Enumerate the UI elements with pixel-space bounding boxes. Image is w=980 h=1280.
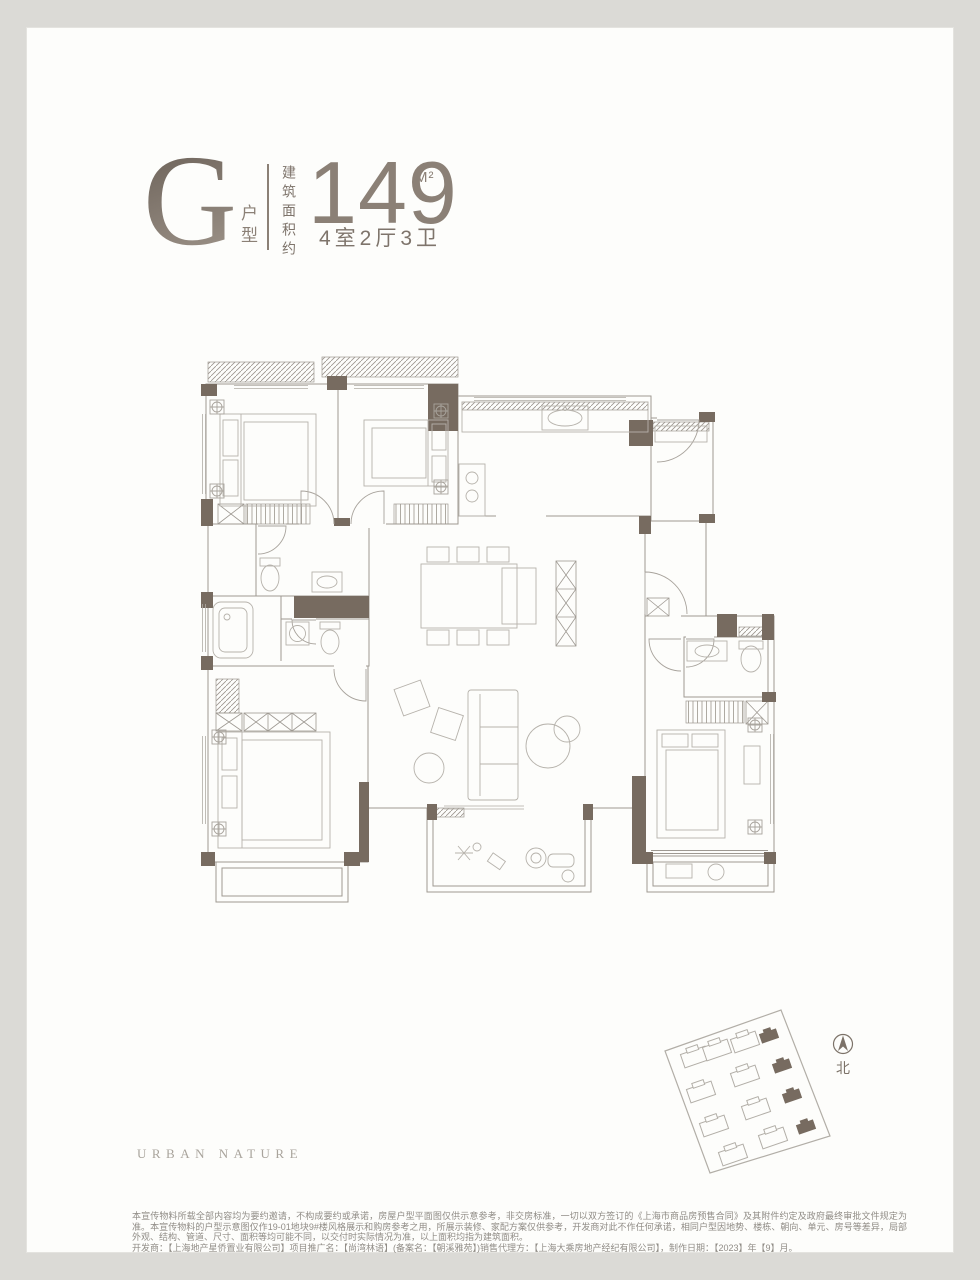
kitchen-counter xyxy=(459,402,648,516)
windows xyxy=(203,386,774,825)
north-compass-icon xyxy=(834,1035,853,1054)
bed-bottom-left xyxy=(218,732,330,848)
disclaimer: 本宣传物料所载全部内容均为要约邀请，不构成要约或承诺，房屋户型平面图仅供示意参考… xyxy=(132,1211,907,1253)
brand-text: URBAN NATURE xyxy=(137,1146,303,1162)
disclaimer-paragraph: 本宣传物料所载全部内容均为要约邀请，不构成要约或承诺，房屋户型平面图仅供示意参考… xyxy=(132,1211,907,1243)
furniture xyxy=(213,402,763,882)
structural-walls xyxy=(201,376,776,866)
room-walls xyxy=(206,384,774,862)
unit-type-suffix: 户型 xyxy=(235,204,260,248)
poster-card: G 户型 建筑面积约 149 M² 4室2厅3卫 xyxy=(26,27,954,1253)
door-gaps xyxy=(258,414,714,670)
header-divider xyxy=(267,164,269,250)
room-layout-text: 4室2厅3卫 xyxy=(319,222,441,252)
page-background: G 户型 建筑面积约 149 M² 4室2厅3卫 xyxy=(0,0,980,1280)
developer-info: 开发商：【上海地产星侨置业有限公司】项目推广名：【尚湾林语】(备案名：【朝溪雅苑… xyxy=(132,1243,907,1254)
master-suite xyxy=(657,641,763,838)
floor-plan xyxy=(196,356,791,911)
site-plan: 北 xyxy=(653,996,888,1186)
balconies xyxy=(216,808,774,902)
unit-type-letter: G xyxy=(143,136,237,266)
north-label: 北 xyxy=(836,1060,850,1076)
dining-set xyxy=(421,547,536,645)
living-room-set xyxy=(394,680,580,800)
bed-top-left xyxy=(220,414,316,506)
doors xyxy=(258,420,714,701)
area-label-vertical: 建筑面积约 xyxy=(279,165,299,260)
area-unit: M² xyxy=(415,169,435,186)
